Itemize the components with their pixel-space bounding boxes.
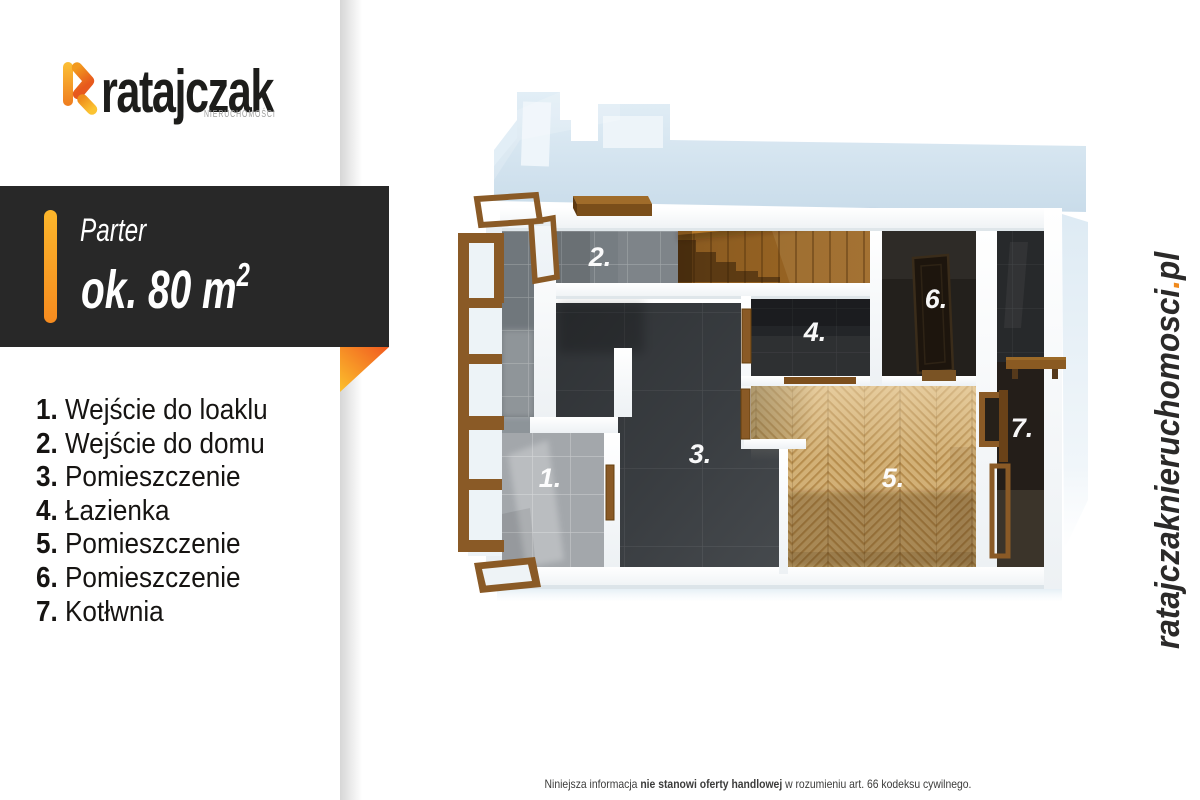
svg-text:2.: 2. [588,242,612,272]
svg-text:1.: 1. [539,463,562,493]
svg-text:4.: 4. [803,317,827,347]
svg-text:6.: 6. [925,284,948,314]
svg-text:7.: 7. [1011,413,1034,443]
svg-text:3.: 3. [689,439,712,469]
svg-text:5.: 5. [882,463,905,493]
